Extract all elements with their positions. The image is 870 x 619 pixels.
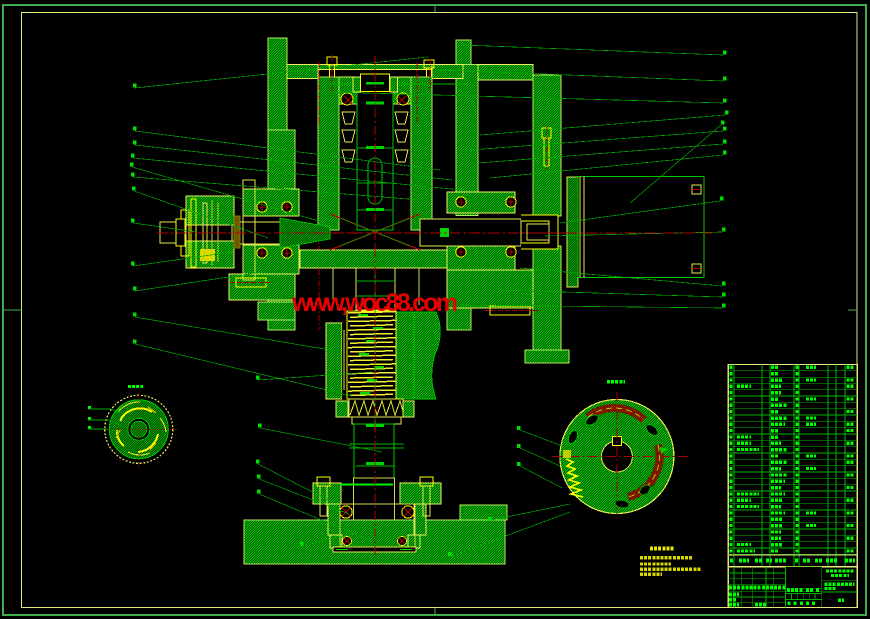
svg-text:www,woc88.com: www,woc88.com <box>291 289 458 317</box>
